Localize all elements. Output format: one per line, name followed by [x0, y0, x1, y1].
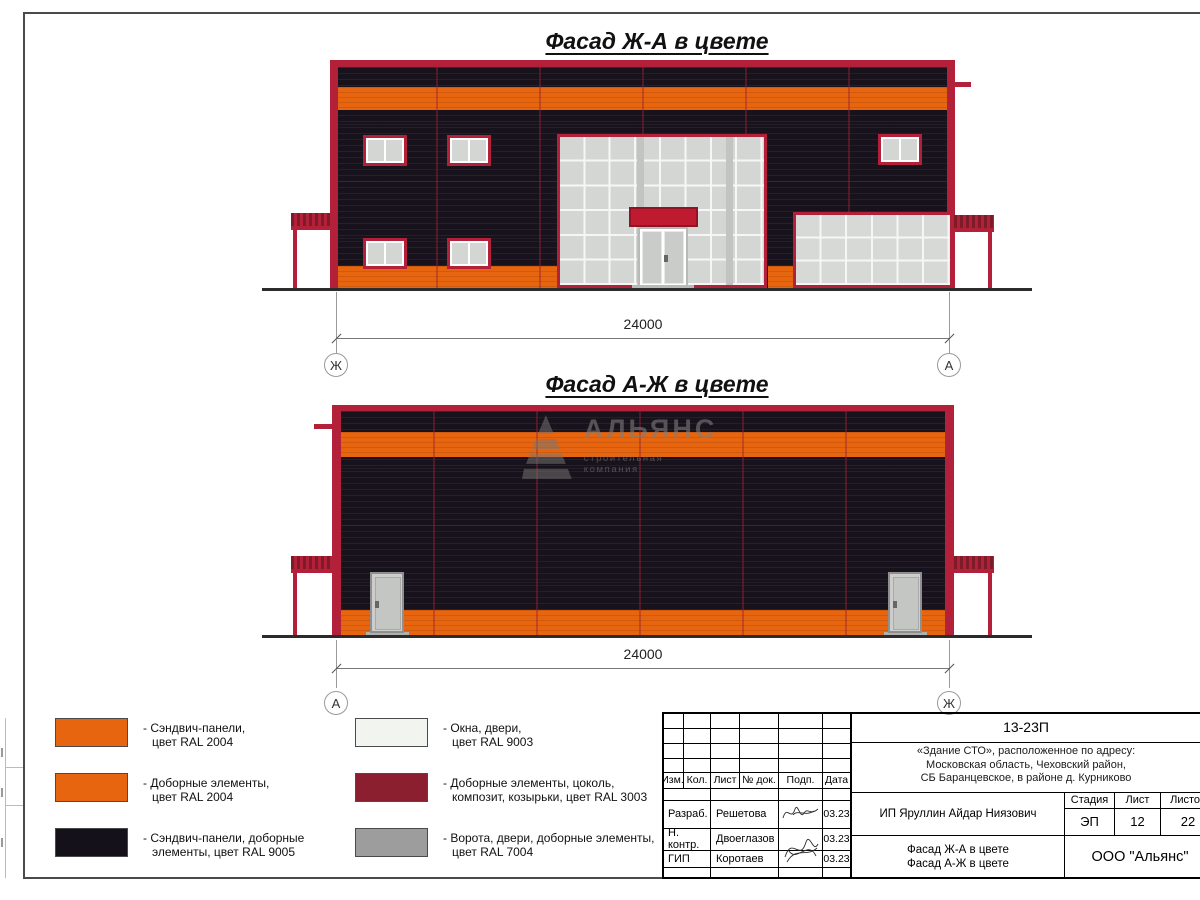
facade1-plinth [338, 266, 557, 288]
gutter-outlet [314, 424, 332, 429]
panel-joint [436, 67, 438, 288]
sheet-title: Фасад Ж-А в цвете Фасад А-Ж в цвете [852, 835, 1064, 878]
margin-column-line [5, 718, 6, 878]
axis-bubble: А [324, 691, 348, 715]
signer-name: Решетова [712, 800, 778, 828]
legend-swatch [355, 718, 428, 747]
canopy-post [293, 230, 297, 288]
facade2-top-trim [332, 405, 954, 411]
sheets-value: 22 [1161, 808, 1200, 835]
side-canopy-band [291, 556, 332, 569]
facade2-orange-stripe [341, 432, 945, 457]
drawing-sheet: Фасад Ж-А в цвете [0, 0, 1200, 900]
ground-line [262, 635, 1032, 638]
titleblock-line [662, 758, 851, 759]
company-name: ООО "Альянс" [1065, 835, 1200, 878]
margin-mark [1, 788, 3, 797]
header-doc: № док. [740, 772, 778, 788]
legend-swatch [55, 718, 128, 747]
legend-swatch [355, 828, 428, 857]
door-handle [893, 601, 897, 608]
header-data: Дата [823, 772, 850, 788]
panel-joint [742, 411, 744, 635]
sheet-label: Лист [1115, 792, 1160, 808]
margin-mark [1, 748, 3, 757]
signer-role: ГИП [664, 850, 710, 867]
door-handle [375, 601, 379, 608]
stage-label: Стадия [1065, 792, 1114, 808]
gutter-outlet [955, 82, 971, 87]
legend-label: - Ворота, двери, доборные элементы,цвет … [443, 831, 683, 859]
signer-name: Двоеглазов [712, 828, 778, 850]
facade2-right-trim [945, 405, 954, 635]
doc-number: 13-23П [852, 712, 1200, 742]
signature [780, 799, 821, 827]
titleblock-line [662, 788, 851, 789]
facade1-title: Фасад Ж-А в цвете [457, 28, 857, 55]
side-canopy-band [954, 556, 994, 569]
margin-mark [1, 838, 3, 847]
facade1-top-trim [330, 60, 955, 67]
extension-line [336, 640, 337, 688]
side-canopy-band [954, 215, 994, 228]
axis-leader [336, 339, 337, 353]
entrance-door [638, 227, 688, 288]
legend-label: - Сэндвич-панели, доборныеэлементы, цвет… [143, 831, 353, 859]
facade2-left-trim [332, 405, 341, 635]
door-leaf [664, 231, 684, 284]
panel-joint [433, 411, 435, 635]
signer-name: Коротаев [712, 850, 778, 867]
titleblock-line [662, 743, 851, 744]
door-handle [664, 255, 668, 262]
facade1-building [330, 60, 955, 288]
glazed-gate [793, 212, 953, 288]
titleblock-line [710, 712, 711, 879]
titleblock-line [662, 867, 851, 868]
facade2-title: Фасад А-Ж в цвете [457, 371, 857, 398]
canopy-post [988, 232, 992, 288]
window [363, 135, 407, 166]
axis-bubble: А [937, 353, 961, 377]
frame-left-line [23, 12, 25, 879]
panel-joint [845, 411, 847, 635]
facade2-plinth [341, 610, 945, 635]
header-kol: Кол. [684, 772, 710, 788]
panel-joint [539, 67, 541, 288]
legend-swatch [55, 773, 128, 802]
dimension-value: 24000 [593, 316, 693, 332]
sheets-label: Листов [1161, 792, 1200, 808]
legend-swatch [55, 828, 128, 857]
stage-value: ЭП [1065, 808, 1114, 835]
legend-label: - Доборные элементы, цоколь,композит, ко… [443, 776, 673, 804]
door-leaf [642, 231, 662, 284]
signature [780, 827, 821, 869]
service-door [888, 572, 922, 633]
facade1-left-trim [330, 60, 338, 288]
glazing-mullion [726, 137, 733, 285]
signer-date: 03.23 [823, 850, 850, 867]
axis-leader [949, 339, 950, 353]
facade1-plinth [768, 266, 793, 288]
window [363, 238, 407, 269]
canopy-post [293, 573, 297, 635]
window [447, 238, 491, 269]
header-izm: Изм. [662, 772, 683, 788]
legend-label: - Окна, двери,цвет RAL 9003 [443, 721, 663, 749]
signer-role: Н. контр. [664, 828, 710, 850]
legend-label: - Доборные элементы,цвет RAL 2004 [143, 776, 343, 804]
dimension-line [336, 668, 950, 669]
panel-joint [639, 411, 641, 635]
signer-date: 03.23 [823, 800, 850, 828]
frame-top-line [23, 12, 1200, 14]
extension-line [949, 640, 950, 688]
titleblock-line [851, 742, 1200, 743]
margin-divider [5, 805, 23, 806]
window [447, 135, 491, 166]
header-podp: Подп. [779, 772, 822, 788]
service-door [370, 572, 404, 633]
side-canopy-beam [291, 569, 332, 573]
canopy-post [988, 573, 992, 635]
dimension-line [336, 338, 950, 339]
facade2-building [332, 405, 954, 635]
dimension-value: 24000 [593, 646, 693, 662]
entrance-canopy [629, 207, 698, 227]
legend-swatch [355, 773, 428, 802]
ground-line [262, 288, 1032, 291]
margin-divider [5, 767, 23, 768]
titleblock-line [662, 728, 851, 729]
client-name: ИП Яруллин Айдар Ниязович [852, 792, 1064, 835]
titleblock-line [778, 712, 779, 879]
side-canopy-band [291, 213, 330, 226]
signer-role: Разраб. [664, 800, 710, 828]
signer-date: 03.23 [823, 828, 850, 850]
project-description: «Здание СТО», расположенное по адресу: М… [852, 745, 1200, 791]
legend-label: - Сэндвич-панели,цвет RAL 2004 [143, 721, 343, 749]
panel-joint [536, 411, 538, 635]
window [878, 134, 922, 165]
axis-bubble: Ж [324, 353, 348, 377]
sheet-value: 12 [1115, 808, 1160, 835]
header-list: Лист [711, 772, 739, 788]
